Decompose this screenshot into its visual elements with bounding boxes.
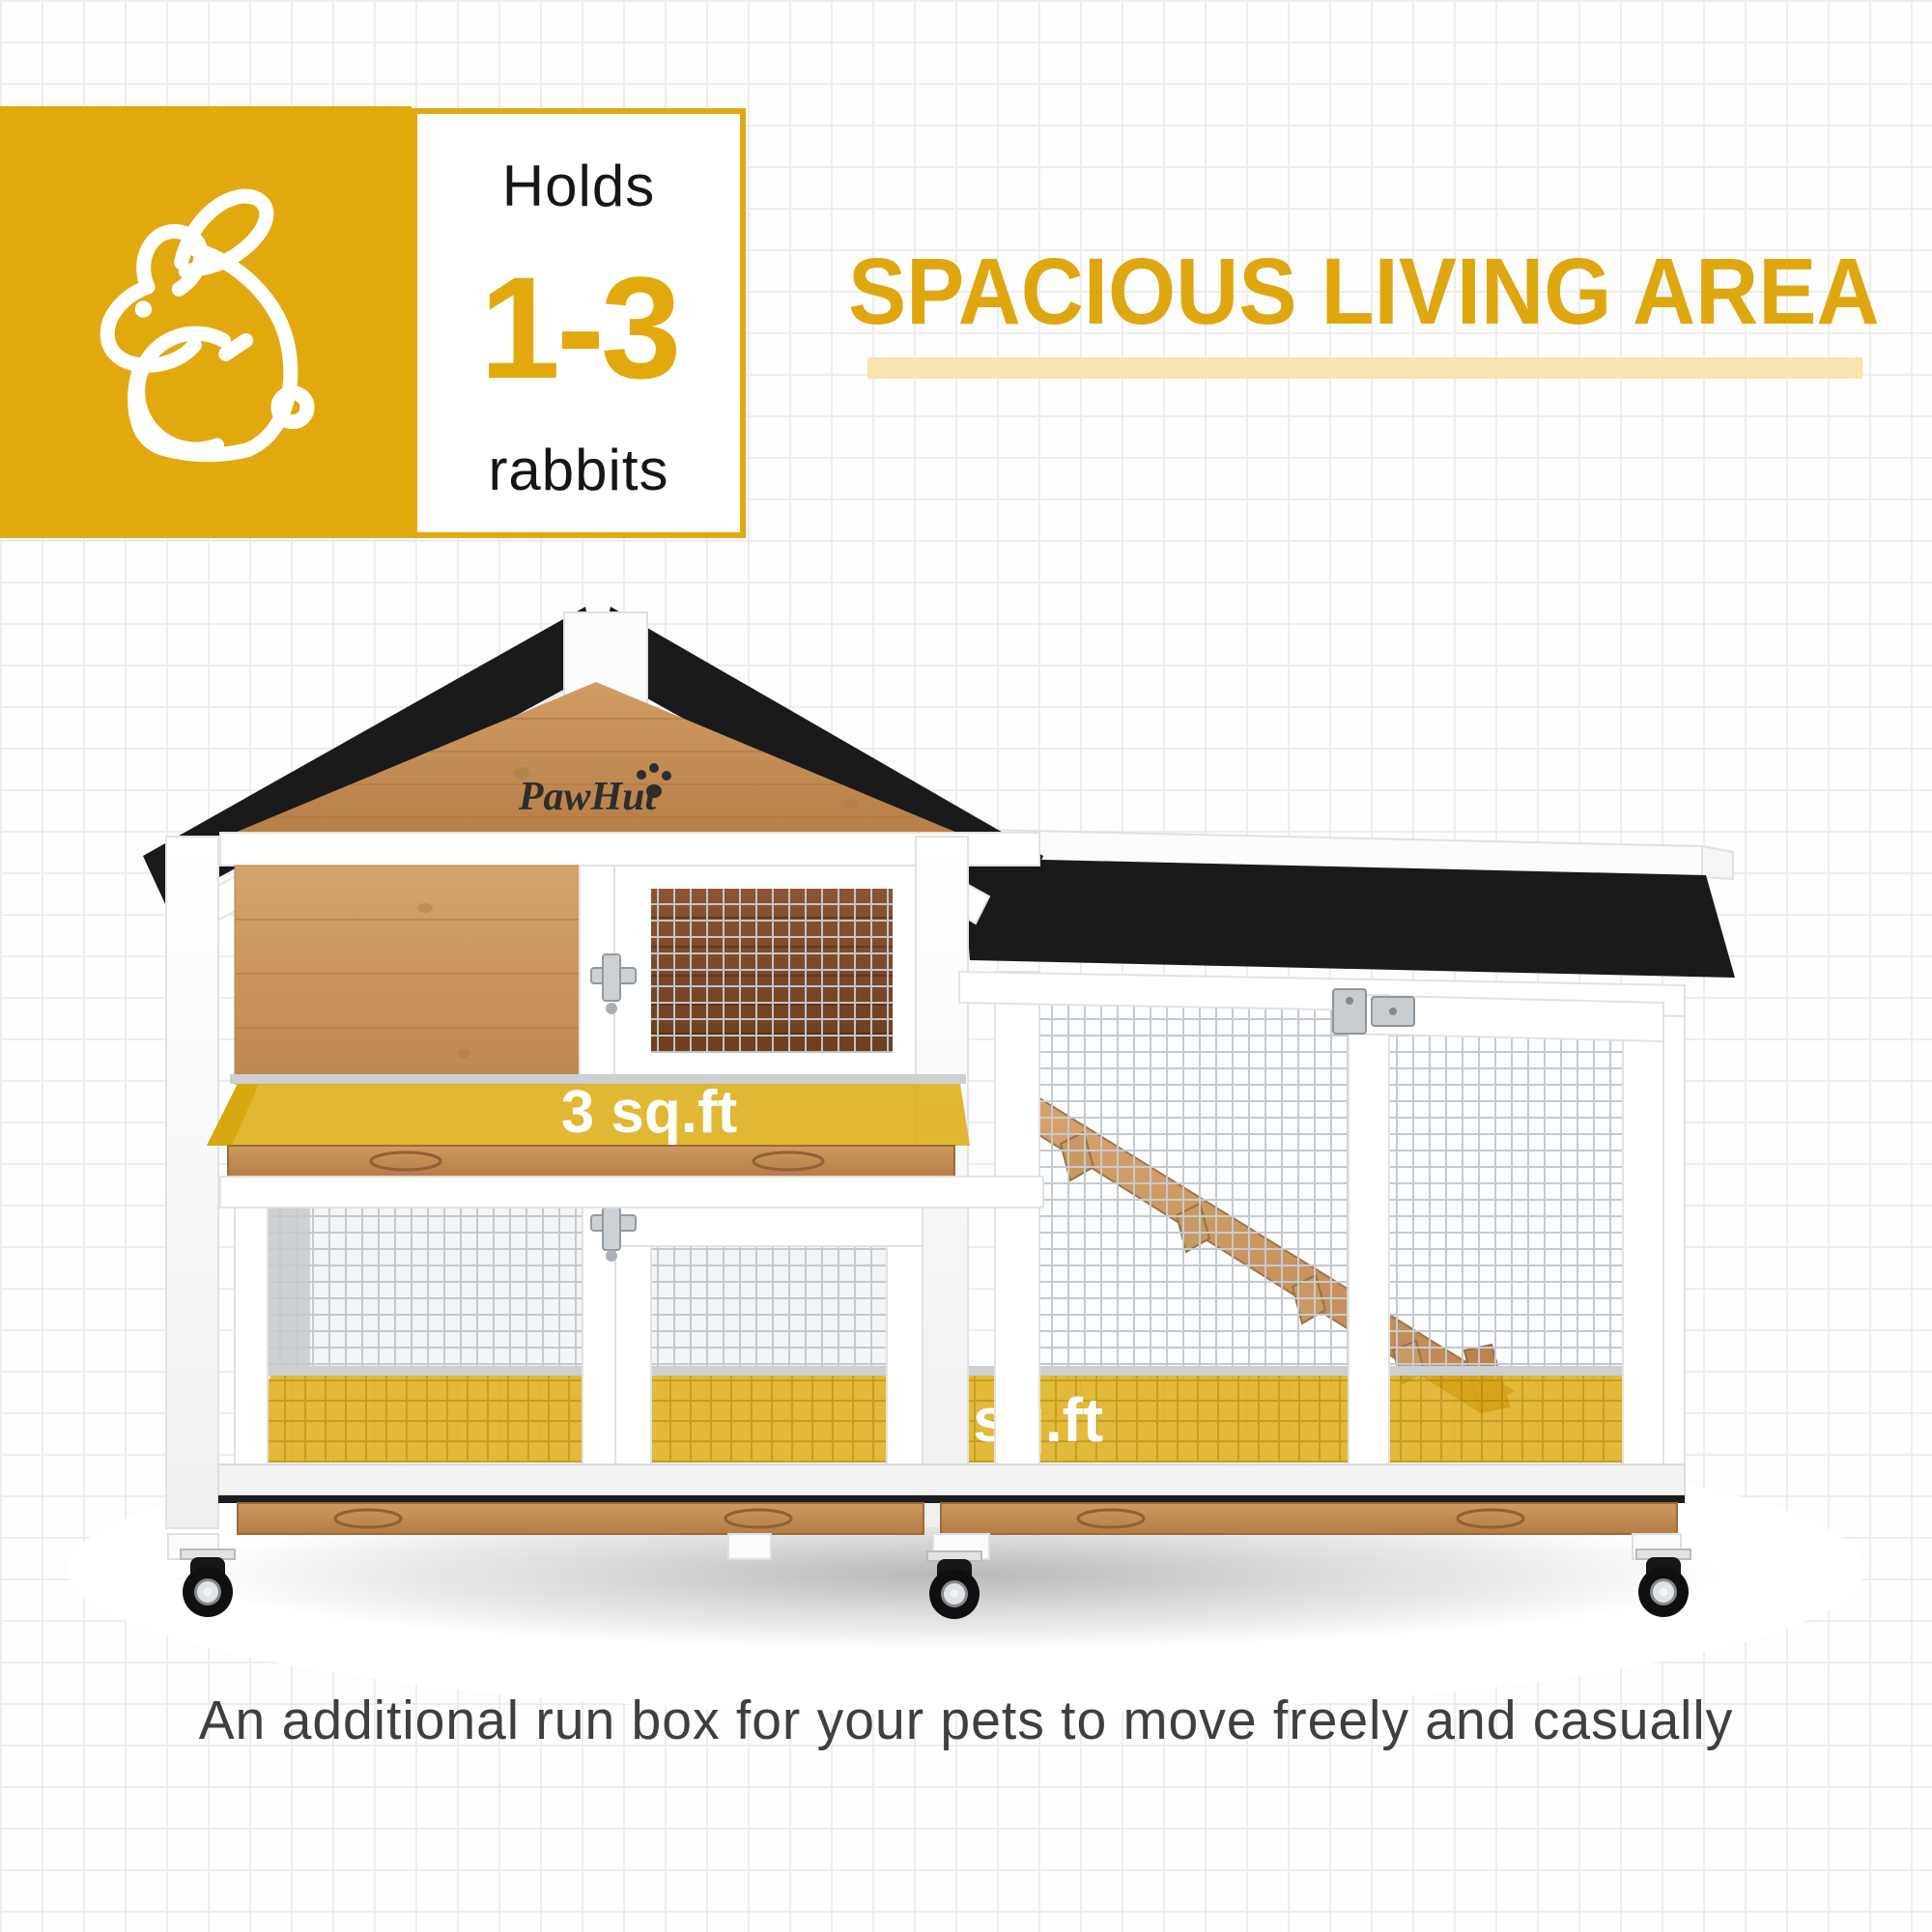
base-rail [218,1464,1685,1495]
page-title: SPACIOUS LIVING AREA [848,238,1880,346]
lower-door-top-rail [615,1207,923,1246]
run-back-rail-end [1702,846,1733,879]
capacity-box: Holds 1-3 rabbits [412,108,746,538]
caster-wheel [927,1551,981,1619]
caster-wheel [181,1549,235,1617]
rabbit-icon [61,178,351,468]
upper-area-overlay: 3 sq.ft [207,1074,970,1146]
kick-plank-left [238,1503,923,1534]
heading-underline [867,357,1862,379]
run-mesh [1016,1003,1642,1379]
lower-left-post [235,1207,268,1464]
brand-logo-text: PawHut [518,775,658,819]
caption-text: An additional run box for your pets to m… [199,1689,1734,1752]
run-section [947,829,1735,1412]
capacity-holds-label: Holds [502,153,655,219]
capacity-badge [0,106,412,538]
drawer-front [220,1146,1043,1207]
caster-wheel [1636,1549,1690,1617]
house-upper-level [235,866,922,1084]
run-roof [962,858,1735,978]
house-left-post [166,837,218,1528]
base-shadow-line [218,1495,1685,1503]
run-door-left-stile [1349,995,1389,1464]
kick-plank-right [941,1503,1677,1534]
infographic-page: PawHut [0,0,1932,1932]
capacity-animal-label: rabbits [488,437,668,503]
upper-area-label: 3 sq.ft [561,1079,738,1146]
run-door-right-stile [1623,1005,1663,1464]
upper-door-mesh [651,889,893,1053]
capacity-range: 1-3 [480,267,678,390]
mid-rail [220,1177,1043,1207]
lower-door-mesh [651,1246,891,1375]
run-left-post [995,972,1039,1464]
lower-window-mesh [268,1207,582,1375]
